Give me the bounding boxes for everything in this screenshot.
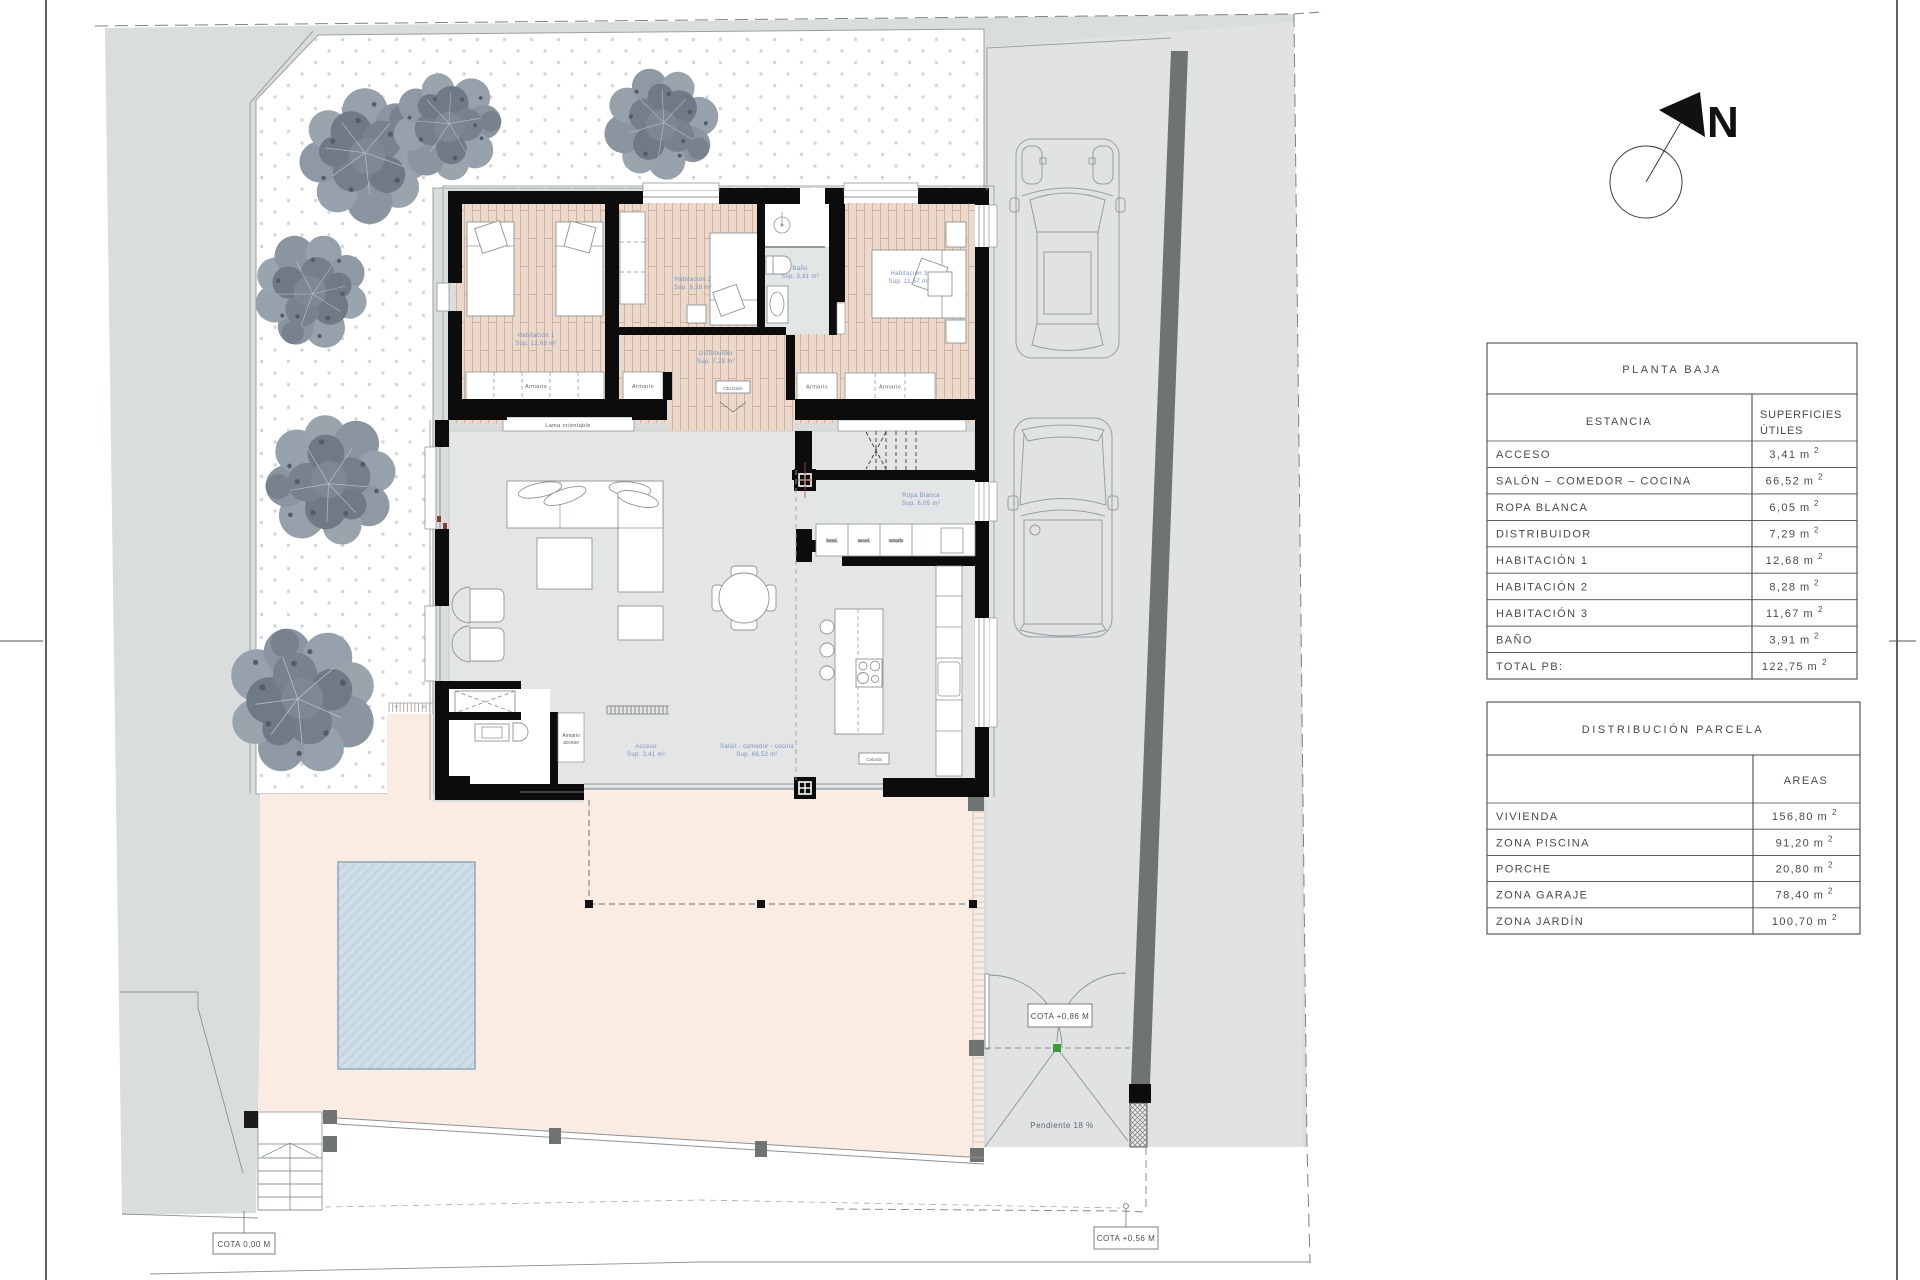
svg-text:3,91 m: 3,91 m — [1769, 634, 1810, 646]
svg-text:11,67 m: 11,67 m — [1766, 608, 1814, 620]
svg-text:Sup. 3,41 m²: Sup. 3,41 m² — [627, 752, 665, 758]
svg-text:ACCESO: ACCESO — [1496, 449, 1551, 461]
svg-text:CELOSÍA: CELOSÍA — [723, 385, 743, 391]
svg-text:Habitación 2: Habitación 2 — [675, 277, 712, 283]
svg-text:Habitación 3: Habitación 3 — [891, 271, 928, 277]
svg-text:acceso: acceso — [563, 740, 579, 746]
svg-text:Sup. 8,28 m²: Sup. 8,28 m² — [674, 285, 712, 291]
svg-text:2: 2 — [1814, 499, 1820, 508]
svg-text:HABITACIÓN 3: HABITACIÓN 3 — [1496, 607, 1588, 620]
svg-text:122,75 m: 122,75 m — [1762, 661, 1818, 673]
svg-text:78,40 m: 78,40 m — [1776, 890, 1825, 902]
svg-text:DISTRIBUCIÓN PARCELA: DISTRIBUCIÓN PARCELA — [1582, 723, 1764, 736]
svg-text:Armario: Armario — [562, 733, 580, 739]
svg-text:2: 2 — [1822, 658, 1828, 667]
svg-text:ÚTILES: ÚTILES — [1760, 424, 1803, 437]
svg-text:2: 2 — [1814, 631, 1820, 640]
svg-text:ZONA PISCINA: ZONA PISCINA — [1496, 837, 1590, 849]
svg-text:secad.: secad. — [858, 538, 870, 543]
svg-text:Baño: Baño — [792, 266, 808, 272]
svg-text:Salón - comedor - cocina: Salón - comedor - cocina — [720, 744, 794, 750]
svg-text:AREAS: AREAS — [1784, 775, 1829, 787]
svg-text:COTA +0,86 M: COTA +0,86 M — [1031, 1012, 1090, 1021]
svg-text:N: N — [1707, 98, 1739, 147]
svg-text:2: 2 — [1818, 473, 1824, 482]
svg-text:Armario: Armario — [879, 385, 901, 391]
svg-text:ZONA JARDÍN: ZONA JARDÍN — [1496, 915, 1584, 928]
svg-text:100,70 m: 100,70 m — [1772, 916, 1828, 928]
svg-text:2: 2 — [1818, 552, 1824, 561]
svg-text:6,05 m: 6,05 m — [1769, 502, 1810, 514]
svg-text:66,52 m: 66,52 m — [1766, 476, 1815, 488]
svg-text:Sup. 11,67 m²: Sup. 11,67 m² — [888, 279, 929, 285]
svg-text:SALÓN – COMEDOR – COCINA: SALÓN – COMEDOR – COCINA — [1496, 475, 1692, 488]
svg-text:VIVIENDA: VIVIENDA — [1496, 811, 1559, 823]
svg-text:HABITACIÓN 1: HABITACIÓN 1 — [1496, 554, 1588, 567]
svg-text:ESTANCIA: ESTANCIA — [1586, 416, 1652, 428]
svg-text:2: 2 — [1832, 808, 1838, 817]
svg-text:PORCHE: PORCHE — [1496, 864, 1551, 876]
svg-text:91,20 m: 91,20 m — [1776, 837, 1825, 849]
svg-text:armario: armario — [889, 538, 904, 543]
svg-text:Habitación 1: Habitación 1 — [518, 333, 555, 339]
svg-text:8,28 m: 8,28 m — [1769, 582, 1810, 594]
svg-text:Sup. 12,68 m²: Sup. 12,68 m² — [515, 341, 557, 347]
svg-text:7,29 m: 7,29 m — [1769, 529, 1810, 541]
svg-text:20,80 m: 20,80 m — [1776, 864, 1825, 876]
svg-text:Lama orientable: Lama orientable — [545, 423, 590, 429]
svg-text:2: 2 — [1828, 861, 1834, 870]
svg-text:HABITACIÓN 2: HABITACIÓN 2 — [1496, 581, 1588, 594]
svg-text:Distribuidor: Distribuidor — [699, 351, 733, 357]
svg-text:Sup. 3,91 m²: Sup. 3,91 m² — [781, 274, 819, 280]
svg-text:2: 2 — [1818, 605, 1824, 614]
svg-text:2: 2 — [1814, 579, 1820, 588]
svg-text:2: 2 — [1828, 834, 1834, 843]
svg-text:2: 2 — [1832, 913, 1838, 922]
svg-text:Sup. 66,52 m²: Sup. 66,52 m² — [736, 752, 778, 758]
svg-text:PLANTA BAJA: PLANTA BAJA — [1622, 364, 1721, 376]
svg-text:2: 2 — [1828, 887, 1834, 896]
svg-text:lavad.: lavad. — [826, 538, 837, 543]
svg-text:Pendiente 18 %: Pendiente 18 % — [1030, 1121, 1094, 1130]
svg-text:3,41 m: 3,41 m — [1769, 449, 1810, 461]
svg-text:COTA +0,56 M: COTA +0,56 M — [1097, 1234, 1156, 1243]
svg-text:SUPERFICIES: SUPERFICIES — [1760, 409, 1842, 421]
svg-text:Armario: Armario — [632, 384, 654, 390]
svg-text:Acceso: Acceso — [635, 744, 657, 750]
svg-text:12,68 m: 12,68 m — [1766, 555, 1815, 567]
svg-text:COTA 0,00 M: COTA 0,00 M — [217, 1240, 270, 1249]
svg-text:2: 2 — [1814, 446, 1820, 455]
svg-text:2: 2 — [1814, 526, 1820, 535]
svg-text:Celosía: Celosía — [866, 757, 882, 762]
svg-text:Sup. 7,29 m²: Sup. 7,29 m² — [697, 359, 735, 365]
svg-text:Armario: Armario — [525, 384, 547, 390]
svg-text:156,80 m: 156,80 m — [1772, 811, 1828, 823]
svg-text:ZONA GARAJE: ZONA GARAJE — [1496, 890, 1588, 902]
svg-text:TOTAL PB:: TOTAL PB: — [1496, 661, 1563, 673]
svg-text:Armario: Armario — [806, 385, 828, 391]
svg-text:Sup. 6,05 m²: Sup. 6,05 m² — [902, 501, 940, 507]
svg-text:DISTRIBUIDOR: DISTRIBUIDOR — [1496, 529, 1592, 541]
svg-text:ROPA BLANCA: ROPA BLANCA — [1496, 502, 1588, 514]
svg-text:Ropa Blanca: Ropa Blanca — [902, 493, 940, 499]
svg-text:BAÑO: BAÑO — [1496, 633, 1533, 646]
